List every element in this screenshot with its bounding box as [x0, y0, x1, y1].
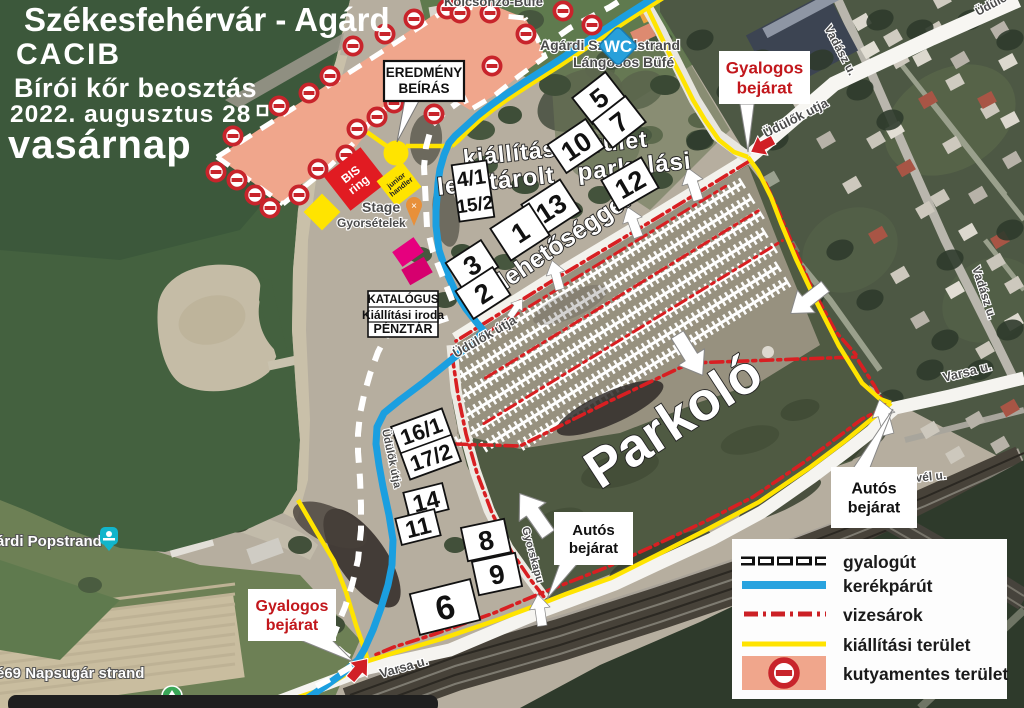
svg-text:bejárat: bejárat [569, 540, 618, 557]
svg-text:KATALÓGUS: KATALÓGUS [367, 293, 438, 306]
svg-text:vasárnap: vasárnap [8, 123, 192, 167]
svg-text:WC: WC [604, 37, 632, 56]
svg-text:kiállítási terület: kiállítási terület [843, 635, 971, 655]
svg-text:kerékpárút: kerékpárút [843, 576, 933, 596]
svg-text:é69 Napsugár strand: é69 Napsugár strand [0, 665, 144, 682]
svg-text:Gyalogos: Gyalogos [726, 59, 803, 78]
svg-text:Stage: Stage [362, 199, 400, 215]
svg-text:bejárat: bejárat [737, 79, 793, 98]
svg-text:Gyorsételek: Gyorsételek [337, 216, 406, 230]
svg-text:Bírói kőr beosztás: Bírói kőr beosztás [14, 73, 257, 103]
svg-text:Autós: Autós [851, 481, 896, 498]
svg-text:4/1: 4/1 [455, 165, 487, 192]
svg-text:PÉNZTÁR: PÉNZTÁR [373, 321, 432, 336]
svg-text:Autós: Autós [572, 522, 615, 539]
svg-text:Székesfehérvár - Agárd: Székesfehérvár - Agárd [24, 1, 390, 38]
svg-text:bejárat: bejárat [266, 617, 319, 634]
svg-text:CACIB: CACIB [16, 38, 121, 71]
svg-text:EREDMÉNY: EREDMÉNY [386, 65, 463, 80]
svg-text:×: × [411, 201, 417, 212]
svg-text:Gyalogos: Gyalogos [256, 598, 329, 615]
svg-text:kutyamentes terület: kutyamentes terület [843, 664, 1009, 684]
svg-text:Kölcsönző-Büfé: Kölcsönző-Büfé [444, 0, 543, 9]
svg-text:bejárat: bejárat [848, 500, 901, 517]
svg-text:BEÍRÁS: BEÍRÁS [398, 81, 449, 96]
svg-text:vizesárok: vizesárok [843, 605, 923, 625]
svg-text:gyalogút: gyalogút [843, 552, 916, 572]
svg-text:árdi Popstrand: árdi Popstrand [0, 533, 102, 550]
svg-text:Kiállítási iroda: Kiállítási iroda [362, 308, 444, 322]
